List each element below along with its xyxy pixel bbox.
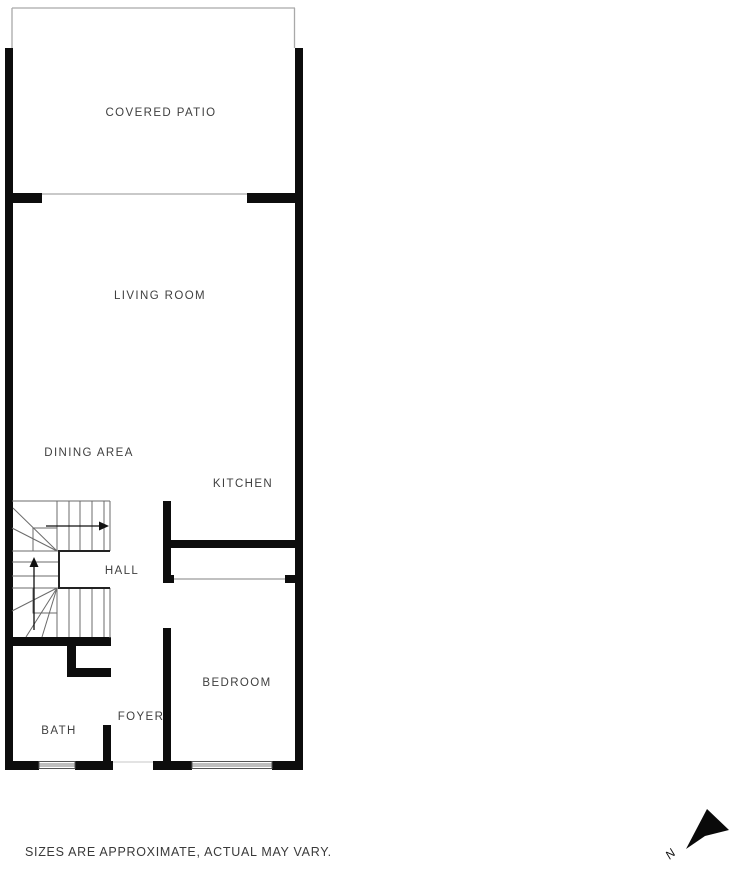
room-label-covered-patio: COVERED PATIO <box>105 107 216 119</box>
stair-right-arrow <box>46 522 109 531</box>
north-arrow-icon <box>686 809 729 849</box>
exterior-walls <box>5 48 303 770</box>
room-label-living-room: LIVING ROOM <box>114 290 206 302</box>
room-label-dining-area: DINING AREA <box>44 447 134 459</box>
bath-window <box>39 762 75 769</box>
room-label-foyer: FOYER <box>118 711 165 723</box>
patio-outline <box>12 8 295 48</box>
bedroom-window <box>192 762 272 769</box>
staircase <box>12 501 110 638</box>
floorplan-drawing <box>0 0 732 872</box>
room-label-bath: BATH <box>41 725 76 737</box>
room-label-bedroom: BEDROOM <box>202 677 271 689</box>
room-label-kitchen: KITCHEN <box>213 478 273 490</box>
floorplan-canvas: COVERED PATIO LIVING ROOM DINING AREA KI… <box>0 0 732 872</box>
disclaimer-text: SIZES ARE APPROXIMATE, ACTUAL MAY VARY. <box>25 845 332 859</box>
room-label-hall: HALL <box>105 565 139 577</box>
